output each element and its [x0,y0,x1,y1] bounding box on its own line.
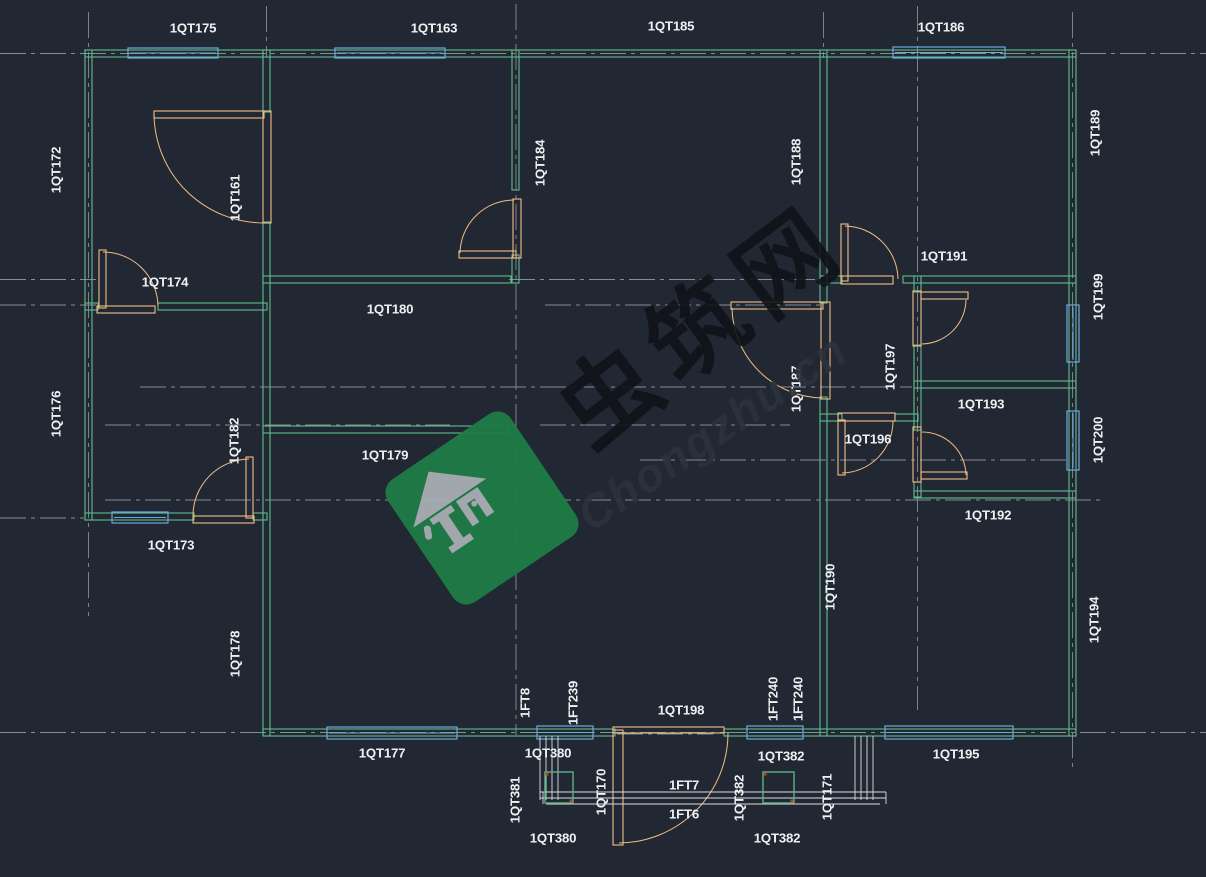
door-leaf[interactable] [921,292,968,299]
entity-label[interactable]: 1QT199 [1090,274,1105,320]
entity-label[interactable]: 1FT239 [565,681,580,725]
entity-label[interactable]: 1QT382 [731,775,746,821]
entity-label[interactable]: 1QT382 [758,748,804,763]
entity-label[interactable]: 1QT182 [226,418,241,464]
door-leaf[interactable] [246,457,253,518]
door-swing-arc[interactable] [922,432,966,475]
marker-dot [791,800,794,803]
entity-label[interactable]: 1QT184 [532,139,547,186]
door-leaf[interactable] [613,727,724,733]
entity-label[interactable]: 1QT179 [362,447,408,462]
entity-label[interactable]: 1QT194 [1086,596,1101,643]
door-leaf[interactable] [154,111,264,118]
door-leaf[interactable] [838,420,845,475]
entity-label[interactable]: 1FT6 [669,806,699,821]
door-swing-arc[interactable] [842,421,893,473]
entity-label[interactable]: 1QT163 [411,20,457,35]
entity-label[interactable]: 1FT240 [790,677,805,721]
door-swing-arc[interactable] [922,300,966,344]
entity-label[interactable]: 1QT177 [359,745,405,760]
door-leaf[interactable] [513,199,521,258]
marker-dot [570,800,573,803]
cad-canvas[interactable]: 1QT1751QT1631QT1851QT1861QT1741QT1801QT1… [0,0,1206,877]
entity-label[interactable]: 1QT180 [367,301,413,316]
entity-label[interactable]: 1QT173 [148,537,194,552]
wall-segment[interactable] [512,50,519,190]
wall-segment[interactable] [263,50,270,112]
entity-label[interactable]: 1QT382 [754,830,800,845]
entity-label[interactable]: 1QT174 [142,274,189,289]
entity-label[interactable]: 1QT381 [507,777,522,823]
wall-segment[interactable] [512,255,519,283]
entity-label[interactable]: 1QT172 [48,147,63,193]
entity-label[interactable]: 1QT186 [918,19,964,34]
wall-segment[interactable] [914,381,1076,388]
entity-label[interactable]: 1QT189 [1087,110,1102,156]
entity-label[interactable]: 1QT170 [593,769,608,815]
door-swing-arc[interactable] [154,114,263,223]
wall-segment[interactable] [263,222,270,736]
entity-label[interactable]: 1QT197 [882,344,897,390]
door-leaf[interactable] [99,250,106,308]
entity-label[interactable]: 1QT175 [170,20,216,35]
wall-segment[interactable] [263,276,511,283]
door-leaf[interactable] [913,291,921,346]
entity-label[interactable]: 1QT380 [525,745,571,760]
marker-dot [764,773,767,776]
entity-label[interactable]: 1QT195 [933,746,979,761]
wall-segment[interactable] [158,303,267,310]
door-leaf[interactable] [913,427,921,482]
door-leaf[interactable] [838,413,895,421]
door-leaf[interactable] [921,472,967,479]
entity-label[interactable]: 1QT198 [658,702,704,717]
wall-segment[interactable] [253,513,267,520]
wall-segment[interactable] [903,276,1076,283]
entity-label[interactable]: 1QT191 [921,248,967,263]
entity-label[interactable]: 1QT176 [48,391,63,437]
door-leaf[interactable] [459,251,516,258]
door-leaf[interactable] [613,730,623,845]
entity-label[interactable]: 1QT171 [819,774,834,820]
entity-label[interactable]: 1QT380 [530,830,576,845]
entity-label[interactable]: 1FT240 [765,677,780,721]
entity-label[interactable]: 1FT7 [669,777,699,792]
entity-label[interactable]: 1QT190 [822,564,837,610]
wall-segment[interactable] [85,513,194,520]
door-leaf[interactable] [193,516,254,523]
entity-label[interactable]: 1QT192 [965,507,1011,522]
entity-label[interactable]: 1QT185 [648,18,694,33]
entity-label[interactable]: 1QT196 [845,431,891,446]
door-swing-arc[interactable] [460,200,514,253]
entity-label[interactable]: 1QT178 [227,631,242,677]
marker-dot [546,773,549,776]
entity-label[interactable]: 1QT161 [227,175,242,221]
door-swing-arc[interactable] [193,459,249,516]
entity-label[interactable]: 1QT193 [958,396,1004,411]
entity-label[interactable]: 1QT200 [1090,417,1105,463]
entity-label[interactable]: 1FT8 [517,688,532,718]
door-leaf[interactable] [263,111,271,223]
wall-segment[interactable] [914,491,1076,498]
